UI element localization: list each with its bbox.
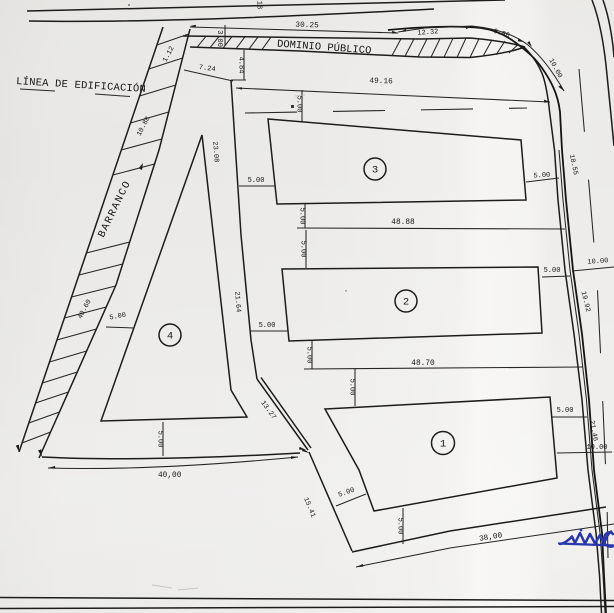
svg-text:2: 2 xyxy=(403,297,409,309)
svg-text:3.00: 3.00 xyxy=(215,30,223,47)
svg-text:48.88: 48.88 xyxy=(391,219,415,227)
svg-text:4: 4 xyxy=(167,331,173,343)
svg-text:5.00: 5.00 xyxy=(299,241,307,258)
svg-text:10.00: 10.00 xyxy=(586,444,607,452)
svg-text:5.00: 5.00 xyxy=(295,96,303,113)
svg-text:12.32: 12.32 xyxy=(417,28,439,37)
svg-text:48.70: 48.70 xyxy=(411,360,435,368)
svg-text:5.00: 5.00 xyxy=(248,177,265,185)
svg-text:5.00: 5.00 xyxy=(557,407,574,415)
svg-text:4.84: 4.84 xyxy=(237,57,245,74)
svg-text:5.00: 5.00 xyxy=(533,171,550,180)
svg-text:5.00: 5.00 xyxy=(544,267,561,275)
svg-text:23.08: 23.08 xyxy=(210,141,219,163)
svg-text:21.64: 21.64 xyxy=(232,291,241,313)
svg-text:3: 3 xyxy=(372,165,378,177)
svg-text:5.00: 5.00 xyxy=(396,518,404,535)
svg-text:5.00: 5.00 xyxy=(259,322,276,330)
svg-text:5.00: 5.00 xyxy=(305,347,313,364)
svg-text:30.25: 30.25 xyxy=(295,22,319,31)
svg-text:5.00: 5.00 xyxy=(348,379,356,396)
svg-text:5.00: 5.00 xyxy=(156,431,164,448)
svg-text:40,00: 40,00 xyxy=(158,472,182,480)
svg-text:1: 1 xyxy=(440,439,446,451)
svg-text:18: 18 xyxy=(255,1,263,9)
svg-text:5.00: 5.00 xyxy=(298,208,306,225)
svg-text:10.00: 10.00 xyxy=(587,257,609,266)
svg-text:49.16: 49.16 xyxy=(369,78,393,87)
